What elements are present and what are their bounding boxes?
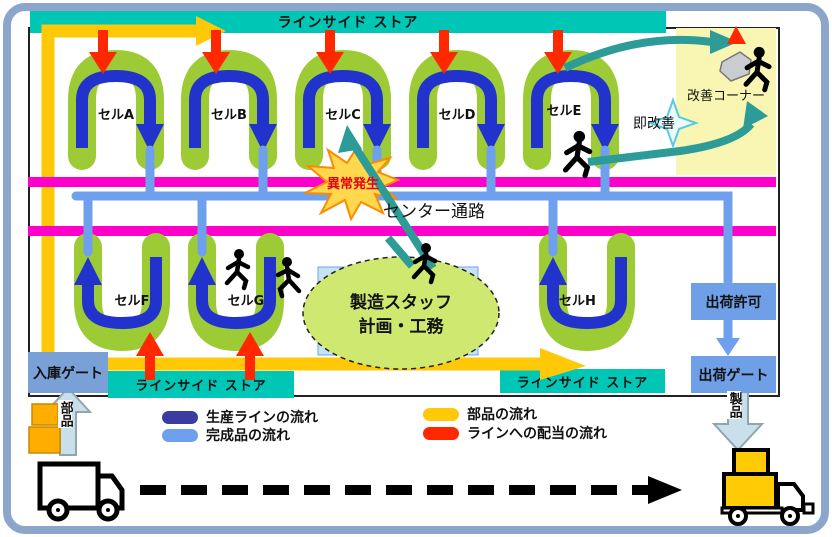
cell-G-label: セルG (196, 290, 296, 309)
kaizen-corner-label: 改善コーナー (674, 85, 778, 104)
legend-swatch-production (162, 411, 198, 424)
parts-box-large (29, 427, 60, 453)
cell-D-label: セルD (407, 104, 507, 123)
inbound-gate-box: 入庫ゲート (28, 352, 108, 393)
factory-layout-page: { "colors": { "frame": "#8CA6CB", "teal_… (0, 0, 832, 537)
legend-label-production: 生産ラインの流れ (206, 407, 318, 427)
transport-dashed-arrowhead (648, 476, 682, 504)
parts-box-small (32, 404, 58, 425)
kaizen-arrowhead-return (743, 101, 768, 129)
outbound-truck-icon (722, 450, 813, 524)
parts-flow-bottom-arrowhead (540, 348, 586, 380)
legend-label-distribution: ラインへの配当の流れ (467, 423, 607, 443)
cell-F-label: セルF (82, 290, 182, 309)
abnormal-label: 異常発生 (317, 173, 389, 192)
ship-gate-label: 出荷ゲート (699, 365, 769, 385)
worker-icon-cell-e (566, 131, 590, 176)
ship-permit-box: 出荷許可 (691, 283, 776, 320)
cell-E-label: セルE (514, 100, 614, 119)
center-aisle-label: センター通路 (383, 197, 485, 222)
cell-H-label: セルH (540, 290, 615, 309)
cell-B-label: セルB (179, 104, 279, 123)
cell-A-label: セルA (66, 104, 166, 123)
flow-diagram-canvas (0, 0, 832, 537)
ship-gate-box: 出荷ゲート (691, 356, 776, 393)
legend-finished-flow: 完成品の流れ (162, 425, 290, 445)
parts-vertical-label: 部品 (58, 400, 72, 428)
product-vertical-label: 製品 (727, 391, 741, 419)
cell-C-label: セルC (293, 104, 393, 123)
kaizen-flag-icon (727, 26, 746, 44)
ship-permit-to-gate-arrowhead (716, 338, 740, 356)
inbound-truck-icon (40, 464, 122, 519)
legend-swatch-parts (423, 408, 459, 421)
ship-permit-label: 出荷許可 (706, 292, 762, 312)
magenta-rail-bottom (28, 226, 776, 236)
legend-parts-flow: 部品の流れ (423, 404, 537, 424)
magenta-rail-top (28, 177, 776, 187)
legend-label-parts: 部品の流れ (467, 404, 537, 424)
staff-label-line1: 製造スタッフ (321, 288, 481, 313)
legend-production-flow: 生産ラインの流れ (162, 407, 318, 427)
immediate-kaizen-label: 即改善 (633, 113, 675, 133)
worker-icon-kaizen-corner (746, 47, 769, 90)
staff-label-line2: 計画・工務 (321, 312, 481, 337)
inbound-gate-label: 入庫ゲート (33, 363, 103, 383)
legend-swatch-finished (162, 429, 198, 442)
legend-label-finished: 完成品の流れ (206, 425, 290, 445)
legend-swatch-distribution (423, 427, 459, 440)
legend-distribution-flow: ラインへの配当の流れ (423, 423, 607, 443)
worker-icon-mid-1 (227, 249, 248, 288)
abnormal-report-arrowhead (338, 125, 362, 153)
